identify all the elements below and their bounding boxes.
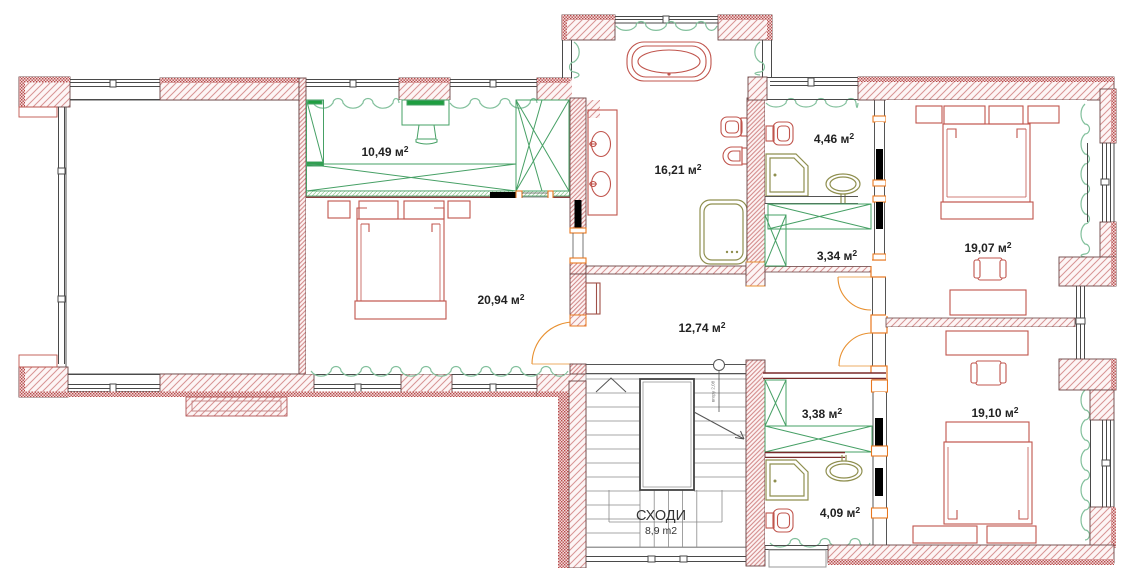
svg-text:СХОДИ: СХОДИ (636, 508, 686, 524)
svg-text:16,21 м2: 16,21 м2 (654, 162, 701, 177)
svg-text:3,38 м2: 3,38 м2 (802, 406, 843, 421)
svg-text:19,10 м2: 19,10 м2 (971, 405, 1018, 420)
svg-text:3,34 м2: 3,34 м2 (817, 248, 858, 263)
svg-text:20,94 м2: 20,94 м2 (477, 292, 524, 307)
svg-text:вгору 2,08: вгору 2,08 (711, 380, 716, 402)
svg-text:4,09 м2: 4,09 м2 (820, 505, 861, 520)
svg-text:8,9 m2: 8,9 m2 (645, 525, 677, 537)
svg-text:12,74 м2: 12,74 м2 (678, 320, 725, 335)
svg-text:4,46 м2: 4,46 м2 (814, 131, 855, 146)
svg-text:19,07 м2: 19,07 м2 (964, 240, 1011, 255)
svg-text:10,49 м2: 10,49 м2 (361, 144, 408, 159)
